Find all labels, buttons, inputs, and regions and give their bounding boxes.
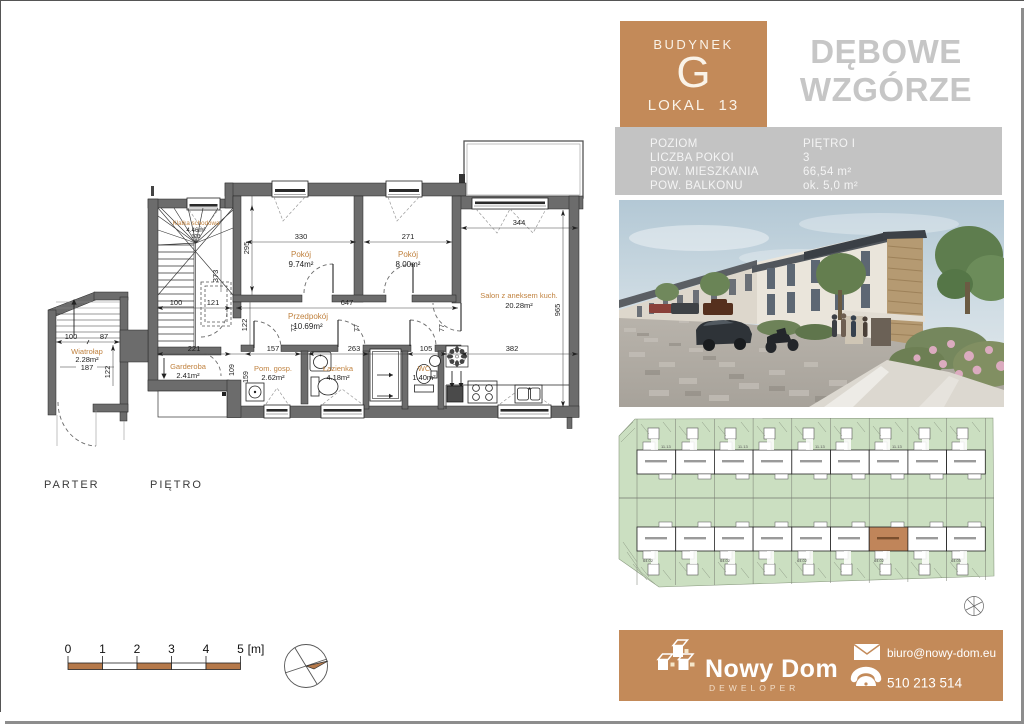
svg-text:3: 3 <box>168 642 175 656</box>
svg-text:510 213 514: 510 213 514 <box>887 676 963 691</box>
svg-text:1: 1 <box>99 642 106 656</box>
svg-text:0: 0 <box>65 642 72 656</box>
svg-text:159: 159 <box>243 371 250 383</box>
svg-text:Pom. gosp.: Pom. gosp. <box>254 364 292 373</box>
svg-text:PARTER: PARTER <box>44 479 100 491</box>
svg-text:Garderoba: Garderoba <box>170 362 207 371</box>
svg-text:64.05: 64.05 <box>951 558 962 563</box>
svg-text:2.62m²: 2.62m² <box>261 373 285 382</box>
svg-text:Łazienka: Łazienka <box>323 364 354 373</box>
svg-text:109: 109 <box>229 364 236 376</box>
svg-text:64.02: 64.02 <box>720 558 731 563</box>
svg-text:647: 647 <box>341 298 354 307</box>
svg-text:100: 100 <box>65 332 78 341</box>
svg-text:122: 122 <box>103 366 112 379</box>
svg-text:Nowy Dom: Nowy Dom <box>705 655 838 683</box>
svg-text:105: 105 <box>420 344 433 353</box>
svg-text:20.28m²: 20.28m² <box>505 301 533 310</box>
svg-text:157: 157 <box>267 344 280 353</box>
svg-text:8.00m²: 8.00m² <box>396 260 421 269</box>
svg-text:Przedpokój: Przedpokój <box>288 312 328 321</box>
svg-text:77: 77 <box>439 324 446 332</box>
svg-text:221: 221 <box>188 344 201 353</box>
svg-text:4.46m²: 4.46m² <box>186 227 205 234</box>
svg-text:11.13: 11.13 <box>661 444 671 449</box>
svg-text:biuro@nowy-dom.eu: biuro@nowy-dom.eu <box>887 646 996 660</box>
svg-text:4: 4 <box>203 642 210 656</box>
svg-text:64.02: 64.02 <box>643 558 654 563</box>
svg-text:Pokój: Pokój <box>291 250 311 259</box>
svg-text:Klatka schodowa: Klatka schodowa <box>173 220 220 227</box>
svg-text:344: 344 <box>513 218 526 227</box>
svg-text:295: 295 <box>242 242 251 255</box>
svg-text:2.41m²: 2.41m² <box>176 371 200 380</box>
svg-text:1.40m²: 1.40m² <box>412 373 436 382</box>
svg-text:187: 187 <box>81 363 94 372</box>
svg-text:77: 77 <box>354 324 361 332</box>
svg-text:263: 263 <box>348 344 361 353</box>
svg-text:Pokój: Pokój <box>398 250 418 259</box>
svg-text:2.28m²: 2.28m² <box>75 355 99 364</box>
svg-text:2: 2 <box>134 642 141 656</box>
svg-text:PIĘTRO: PIĘTRO <box>150 479 203 491</box>
svg-text:121: 121 <box>207 298 220 307</box>
svg-text:5: 5 <box>237 642 244 656</box>
svg-text:[m]: [m] <box>248 642 265 656</box>
svg-text:330: 330 <box>295 232 308 241</box>
svg-text:100: 100 <box>170 298 183 307</box>
svg-text:122: 122 <box>240 319 249 332</box>
svg-text:965: 965 <box>553 304 562 317</box>
svg-text:10.69m²: 10.69m² <box>293 322 323 331</box>
svg-text:11.13: 11.13 <box>892 444 902 449</box>
svg-text:11.13: 11.13 <box>815 444 825 449</box>
svg-text:323: 323 <box>191 234 200 240</box>
svg-text:WC: WC <box>418 364 431 373</box>
svg-text:DEWELOPER: DEWELOPER <box>709 683 799 693</box>
svg-text:64.02: 64.02 <box>874 558 885 563</box>
svg-text:4.18m²: 4.18m² <box>326 373 350 382</box>
svg-text:373: 373 <box>211 270 220 283</box>
svg-text:9.74m²: 9.74m² <box>289 260 314 269</box>
svg-text:11.13: 11.13 <box>738 444 748 449</box>
svg-text:87: 87 <box>100 332 108 341</box>
svg-text:64.02: 64.02 <box>797 558 808 563</box>
svg-text:271: 271 <box>402 232 415 241</box>
svg-text:382: 382 <box>506 344 519 353</box>
svg-text:Salon z aneksem kuch.: Salon z aneksem kuch. <box>480 291 558 300</box>
